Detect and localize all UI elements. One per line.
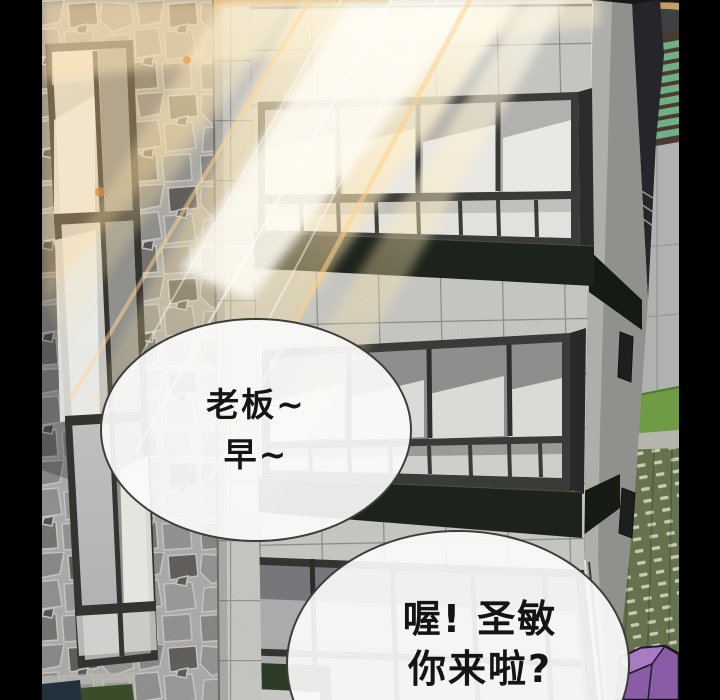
speech-bubble-1-line-2: 早~ <box>224 430 289 480</box>
sun-glint <box>95 187 105 197</box>
sun-glint <box>183 56 191 64</box>
speech-bubble-2-line-1: 喔! 圣敏 <box>403 594 558 644</box>
speech-bubble-1: 老板~ 早~ <box>100 318 412 542</box>
side-slot-window <box>618 332 633 382</box>
comic-panel: 老板~ 早~ 喔! 圣敏 你来啦? <box>0 0 720 700</box>
speech-bubble-2-line-2: 你来啦? <box>408 644 552 694</box>
speech-bubble-1-line-1: 老板~ <box>206 380 306 430</box>
side-slot-window <box>619 488 635 538</box>
